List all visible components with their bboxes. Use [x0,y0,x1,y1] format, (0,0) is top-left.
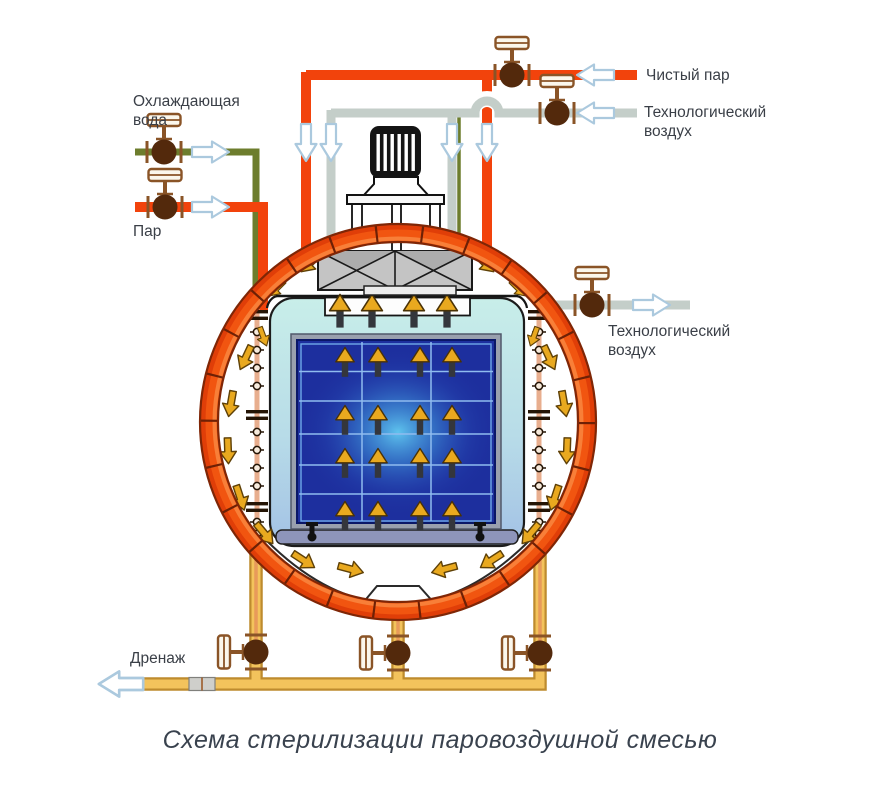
label-cooling-water-line1: Охлаждающая [133,93,240,110]
flow-arrow-process-air-top [577,103,614,124]
label-clean-steam: Чистый пар [646,67,730,84]
pipe-drain [122,535,540,691]
label-process-air-top-line2: воздух [644,123,692,140]
fan-impeller [318,251,472,295]
flow-arrow-down-steam-left [296,124,317,161]
diagram-steam-air-sterilization: Охлаждающая вода Пар Чистый пар Технолог… [0,0,880,802]
load-rack [291,334,501,542]
label-process-air-side-line1: Технологический [608,323,730,340]
flow-arrow-cooling-water [192,142,229,163]
label-cooling-water-line2: вода [133,112,167,129]
motor-mount-plate [347,195,444,204]
flow-arrow-drain [99,671,143,696]
valve-process-air-top [540,75,574,126]
flow-arrow-down-air-left [321,124,342,161]
flow-arrow-process-air-side [633,295,670,316]
flow-arrow-clean-steam [577,65,614,86]
diagram-caption: Схема стерилизации паровоздушной смесью [0,726,880,755]
label-steam: Пар [133,223,161,240]
sparger-right [528,298,550,540]
valve-process-air-side [575,267,609,318]
diagram-canvas: Охлаждающая вода Пар Чистый пар Технолог… [0,0,880,802]
label-process-air-top-line1: Технологический [644,104,766,121]
flow-arrow-down-steam-right [477,124,498,161]
label-process-air-side-line2: воздух [608,342,656,359]
flow-arrow-steam [192,197,229,218]
label-drain: Дренаж [130,650,186,667]
